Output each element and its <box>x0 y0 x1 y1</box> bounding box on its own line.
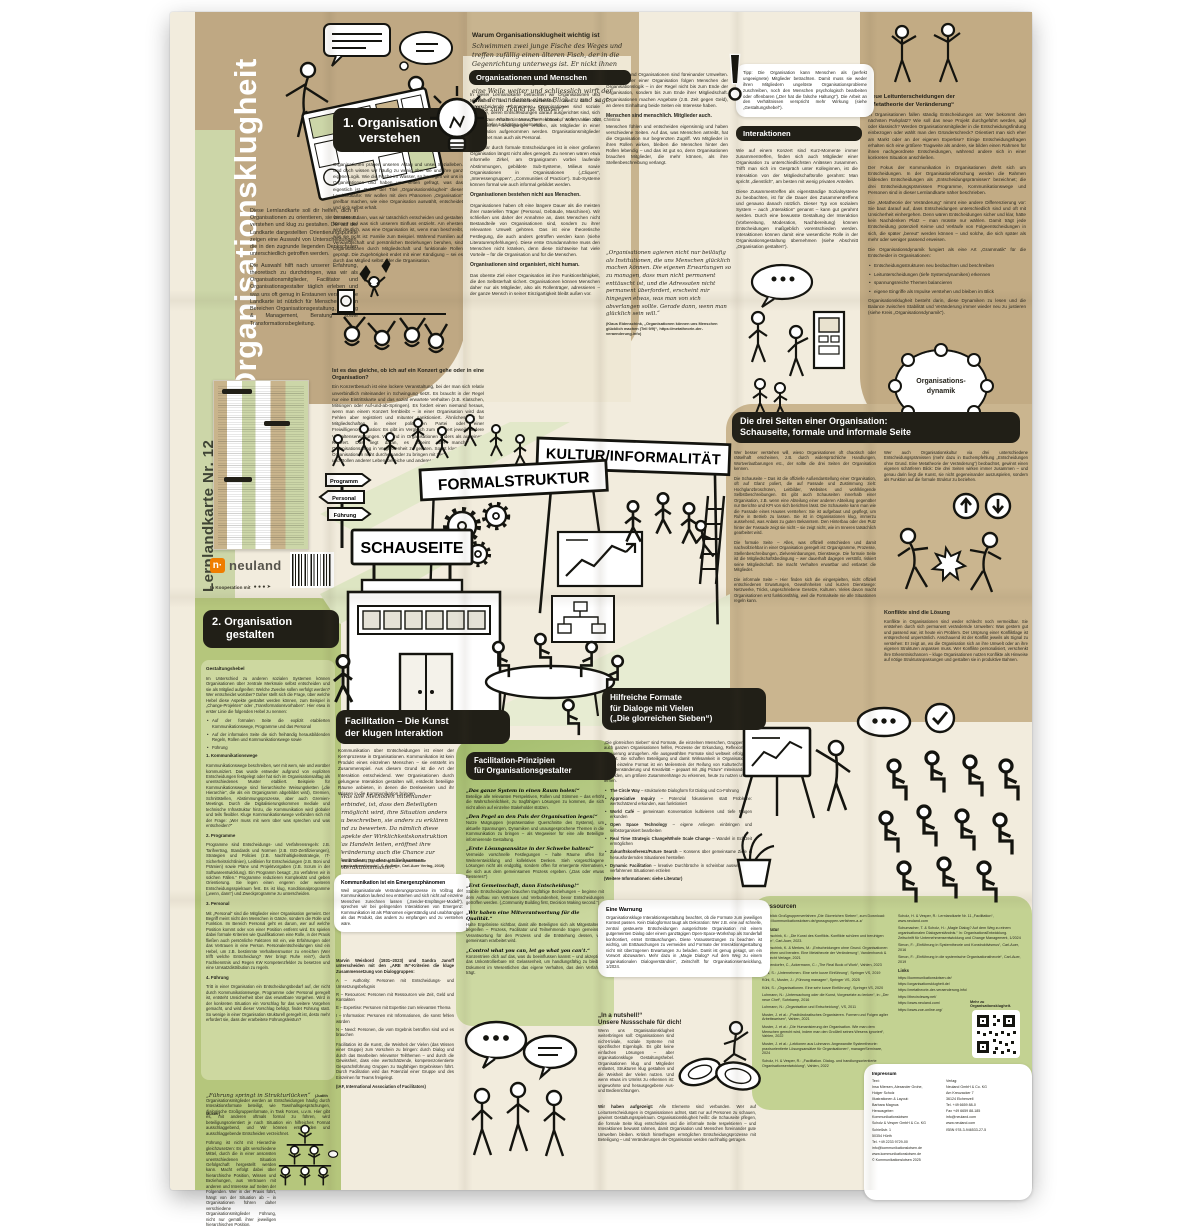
formate-block: „Die glorreichen Sieben“ sind Formate, d… <box>604 740 752 885</box>
paragraph: In dieser Lernlandkarte betrachten wir O… <box>470 92 600 141</box>
signpost-personal: Personal <box>332 496 356 502</box>
list-item: Simon, F.: „Einführung in die systemisch… <box>898 955 1024 965</box>
tipp-box: Tipp: Die Organisation kann Menschen als… <box>736 64 874 117</box>
hebel-heading: Gestaltungshebel <box>206 666 245 671</box>
tipp-text: Tipp: Die Organisation kann Menschen als… <box>743 70 867 111</box>
list-item: Luhmann, N.: „Organisation und Entscheid… <box>762 1005 890 1010</box>
paragraph: Die Schauseite – Das ist die offizielle … <box>734 476 876 536</box>
list-item: N – Need: Personen, die vom Ergebnis bet… <box>336 1027 454 1038</box>
signpost-fuehrung: Führung <box>334 513 357 519</box>
facilitation-closing: Facilitation ist die Kunst, die Weisheit… <box>336 1042 454 1080</box>
formate-note: (Weitere Informationen: siehe Literatur) <box>604 876 752 881</box>
building-facade <box>348 592 500 726</box>
list-item: Holger Scholz <box>872 1091 938 1096</box>
list-item: info@neuland.com <box>946 1115 1012 1120</box>
kooperation-label: In Kooperation mit <box>210 585 251 590</box>
gestalten-sub1-body: Kommunikationswege beschreiben, wer mit … <box>206 763 330 828</box>
paragraph: Wie auf einem Konzert sind Kurz-Momente … <box>736 148 858 185</box>
drei-seiten-badge-line2: Schauseite, formale und informale Seite <box>740 427 1012 438</box>
list-item: Illustrationen & Layout: <box>872 1097 938 1102</box>
paragraph: Der Fokus der Kommunikation in Organisat… <box>868 165 1026 196</box>
aufgezeigt-heading: Wir haben aufgezeigt: <box>598 1104 653 1109</box>
audience <box>880 752 1018 903</box>
list-item: Muster, J. et al.: „Lektionen aus Luhman… <box>762 1042 890 1056</box>
list-item: Schumacher, T. & Scholz, H.: „Magie Dial… <box>898 926 1024 940</box>
list-item: © Kommunikationslotsen 2025 <box>872 1158 938 1163</box>
formate-badge-line3: („Die glorreichen Sieben“) <box>610 714 758 725</box>
drei-seiten-col2-top: Wer auch Organisationskultur via drei un… <box>884 450 1028 487</box>
subheading: Organisationen bestehen nicht aus Mensch… <box>470 192 581 198</box>
list-item: Muster, J. et al.: „Postbürokratisches O… <box>762 1013 890 1023</box>
prinzipien-badge-line1: Facilitation-Prinzipien <box>474 756 555 765</box>
list-item: Grubendorfer, C., Ackermann, C.: „The Re… <box>762 963 890 968</box>
list-item: Auf der informalen Seite die sich freihä… <box>212 732 330 743</box>
gestalten-sub3-body: Mit „Personal“ sind die Mitglieder einer… <box>206 911 330 971</box>
konflikte-block: Konflikte sind die Lösung Konflikte in O… <box>884 610 1028 667</box>
list-item: Muster, J. et al.: „Die Humanisierung de… <box>762 1025 890 1039</box>
formate-lead: „Die glorreichen Sieben“ sind Formate, d… <box>604 740 752 784</box>
list-item: Tel. +49 2233 9729-00 <box>872 1140 938 1145</box>
diagram-label-line2: dynamik <box>927 388 956 395</box>
gestalten-sub3-heading: 3. Personal <box>206 901 229 906</box>
paragraph: Diese Zusammentreffen als eigenständige … <box>736 189 858 250</box>
paragraph: Organisationen haben oft eine längere Da… <box>470 203 600 258</box>
mini-poster-thumbnail <box>213 380 309 550</box>
line-chart-board <box>558 532 642 586</box>
formate-badge: Hilfreiche Formate für Dialoge mit Viele… <box>602 688 766 730</box>
format-name: Appreciative Inquiry <box>610 796 655 801</box>
prinzipien-list: „Das ganze System in einen Raum holen!“ … <box>466 788 604 975</box>
prinzip-quote: „Wir haben eine Mitverantwortung für die… <box>466 910 604 922</box>
list-item: Tel. +49 6659 88-0 <box>946 1103 1012 1108</box>
gestalten-badge-line2: gestalten <box>212 629 330 642</box>
facilitation-badge-line1: Facilitation – Die Kunst <box>345 715 449 726</box>
quote-source: (Klaus Eidenschink, „Organisationen könn… <box>606 321 732 336</box>
format-name: World Café <box>610 809 634 814</box>
signpost-programm: Programm <box>330 479 358 485</box>
gestalten-badge: 2. Organisation gestalten <box>203 610 339 648</box>
metatheorie-text: In Organisationen fallen ständig Entsche… <box>868 112 1026 321</box>
list-item: Kommunikationslotsen <box>872 1115 938 1120</box>
qr-code <box>972 1010 1020 1058</box>
gestalten-sub4-heading: 4. Führung <box>206 975 229 980</box>
thought-cloud-icon <box>400 32 452 70</box>
subheading: Menschen sind menschlich. Mitglieder auc… <box>606 113 712 119</box>
ressourcen-left: Überblick Großgruppenverfahren „Die Glor… <box>762 914 890 1071</box>
neuland-logo-icon: n· <box>210 558 225 573</box>
formate-badge-line2: für Dialoge mit Vielen <box>610 704 758 715</box>
aufgezeigt-body: Alle Elemente sind verbunden. Wer auf Le… <box>598 1104 756 1142</box>
list-item: www.neuland.com <box>946 1121 1012 1126</box>
neuland-logo: n· neuland <box>210 558 282 573</box>
gestalten-content: Gestaltungshebel Im Unterschied zu ander… <box>206 666 330 1026</box>
list-item: E – Expertise: Personen mit Expertise zu… <box>336 1005 454 1010</box>
list-item: Simon, F.: „Einführung in Systemtheorie … <box>898 943 1024 953</box>
flipchart-presentation-illustration <box>732 700 1032 912</box>
list-item: Verlag: <box>946 1079 1012 1084</box>
list-item: spannungsreiche Themen balancieren <box>874 280 1026 286</box>
kooperation-line: In Kooperation mit ● ● ● ➤ <box>210 584 271 590</box>
paragraph: Menschen fühlen und entscheiden eigensin… <box>606 124 728 167</box>
poster-sheet: Lernlandkarte Nr. 12 Organisationsklughe… <box>170 12 1032 1190</box>
section1-paragraph: Organisationen prägen unseren Alltag und… <box>333 162 463 211</box>
warnung-heading: Eine Warnung <box>606 907 762 913</box>
list-item: Auf der formalen Seite die explizit etab… <box>212 718 330 729</box>
impressum-right: Verlag:Neuland GmbH & Co. KGAm Kreuzacke… <box>946 1079 1012 1164</box>
format-name: Open Space Technology <box>610 822 667 827</box>
emergenz-box: Kommunikation ist ein Emergenzphänomen W… <box>334 874 470 932</box>
neuland-logo-text: neuland <box>229 558 282 573</box>
list-item: R – Resources: Personen mit Ressourcen w… <box>336 992 454 1003</box>
metatheorie-heading-line1: Neue Leitunterscheidungen der <box>868 94 955 100</box>
format-desc: – strukturierte Dialogform für Dialog un… <box>640 788 739 793</box>
paragraph: Erwartbar durch formale Entscheidungen i… <box>470 145 600 188</box>
paragraph: Wer auch Organisationskultur via drei un… <box>884 450 1028 483</box>
gestalten-sub4-body: Tritt in einer Organisation ein Entschei… <box>206 984 330 1022</box>
subheading: Organisationen sind organisiert, nicht h… <box>470 262 579 268</box>
impressum-heading: Impressum <box>872 1071 1024 1076</box>
partner-logos-icon: ● ● ● ➤ <box>254 584 271 590</box>
facilitation-badge-line2: der klugen Interaktion <box>345 727 501 739</box>
facilitation-text: Kommunikation über Entscheidungen ist ei… <box>338 748 454 801</box>
plant-icon <box>738 832 774 886</box>
prinzip-body: Beteilige alle relevanten Perspektiven, … <box>466 794 604 810</box>
impressum-box: Impressum Text:Insa Miersen, Alexander G… <box>864 1064 1032 1200</box>
list-item: A – Authority: Personen mit Entscheidung… <box>336 978 454 989</box>
list-item: Luhmann, N.: „Unterwachung oder die Kuns… <box>762 993 890 1003</box>
central-map-illustration: Programm Personal Führung KULTUR/INFORMA… <box>320 404 730 726</box>
literatur-list-right: Scholz, H. & Vesper, R.: Lernlandkarte N… <box>898 914 1024 965</box>
paragraph: Die formale Seite – Alles, was offiziell… <box>734 540 876 573</box>
list-item: Text: <box>872 1079 938 1084</box>
paragraph: In Organisationen fallen ständig Entsche… <box>868 112 1026 161</box>
drei-seiten-badge: Die drei Seiten einer Organisation: Scha… <box>732 412 1020 443</box>
konflikte-heading: Konflikte sind die Lösung <box>884 610 1028 617</box>
gestalten-sub2-body: Programme sind Entscheidungs- und Verfah… <box>206 842 330 897</box>
section1-badge-line1: 1. Organisation <box>343 115 438 130</box>
metatheorie-bullets: Entscheidungsstrukturen neu beobachten u… <box>868 263 1026 295</box>
list-item: https://organisationsklugheit.de/ <box>898 982 1024 987</box>
paragraph: Führung ist nicht mit Hierarchie gleichz… <box>206 1140 276 1227</box>
facilitation-closing-source: (IAF, International Association of Facil… <box>336 1084 454 1089</box>
paragraph: Die informale Seite – Hier finden sich d… <box>734 577 876 604</box>
list-item: 50354 Hürth <box>872 1134 938 1139</box>
paragraph: Organisationsklugheit besteht darin, die… <box>868 298 1026 316</box>
emergenz-heading: Kommunikation ist ein Emergenzphänomen <box>341 880 463 886</box>
list-item: I – Information: Personen mit Informatio… <box>336 1013 454 1024</box>
formate-badge-line1: Hilfreiche Formate <box>610 693 682 702</box>
ressourcen-right: Scholz, H. & Vesper, R.: Lernlandkarte N… <box>898 914 1024 1014</box>
prinzip-body: Vermeide vorschnelle Festlegungen – halt… <box>466 852 604 879</box>
paragraph: Die „Metatheorie der Veränderung“ nimmt … <box>868 200 1026 243</box>
facilitation-quote-source: (Fritz B. Simon, „Einführung in die syst… <box>338 858 454 868</box>
dialog-group-illustration <box>458 1018 582 1182</box>
interaktionen-text: Wie auf einem Konzert sind Kurz-Momente … <box>736 148 858 254</box>
literatur-heading: Literatur <box>762 927 890 932</box>
list-item: Kühl, S.: „Unternehmen. Eine sehr kurze … <box>762 971 890 976</box>
arein-lead: Marvin Weisbord (1931–2023) und Sandra J… <box>336 958 454 974</box>
paragraph: Wer besser verstehen will, wieso Organis… <box>734 450 876 472</box>
prinzip-body: Konzentriere dich auf das, was du beeinf… <box>466 954 604 976</box>
gestalten-sub1-heading: 1. Kommunikationswege <box>206 753 257 758</box>
konzert-heading: Ist es das gleiche, ob ich auf ein Konze… <box>332 368 484 382</box>
exclamation-icon <box>718 52 752 104</box>
list-item: Kühl, S., Muster, J.: „Führung managen“,… <box>762 978 890 983</box>
aufgezeigt-block: Wir haben aufgezeigt: Alle Elemente sind… <box>598 1104 756 1146</box>
flipchart-easel <box>740 728 814 818</box>
nutshell-body: Wenn uns Organisationsklugheit weiterbri… <box>598 1028 674 1093</box>
hebel-body: Im Unterschied zu anderen sozialen Syste… <box>206 676 330 714</box>
diagram-label-line1: Organisations- <box>916 378 966 385</box>
paragraph: Das oberste Ziel einer Organisation ist … <box>470 273 600 298</box>
metatheorie-heading: Neue Leitunterscheidungen der „Metatheor… <box>868 94 1026 109</box>
list-item: Scholz & Vesper GmbH & Co. KG <box>872 1121 938 1126</box>
list-item: Scholz, H. & Vesper, R.: Lernlandkarte N… <box>898 914 1024 924</box>
org-menschen-colA: In dieser Lernlandkarte betrachten wir O… <box>470 92 600 301</box>
section1-text: Organisationen prägen unseren Alltag und… <box>333 162 463 268</box>
concert-crowd-illustration <box>330 256 450 364</box>
list-item: info@kommunikationslotsen.de <box>872 1146 938 1151</box>
prinzip-quote: „Control what you can, let go what you c… <box>466 948 604 954</box>
format-name: Real Time Strategic Change/Whole Scale C… <box>610 836 711 841</box>
list-item: https://thecircleway.net/ <box>898 995 1024 1000</box>
gestalten-badge-line1: 2. Organisation <box>212 616 292 628</box>
list-item: Schießstr. 1 <box>872 1128 938 1133</box>
org-chart-board <box>552 596 614 642</box>
prinzip-body: Halte Ergebnisse sichtbar, damit alle Be… <box>466 922 604 944</box>
arein-block: Marvin Weisbord (1931–2023) und Sandra J… <box>336 958 454 1093</box>
interaction-illustration <box>730 260 860 420</box>
metatheorie-heading-line2: „Metatheorie der Veränderung“ <box>868 102 954 108</box>
list-item: eigene Eingriffe als Impulse verstehen u… <box>874 289 1026 295</box>
quote-text: „Organisationen agieren nicht nur beiläu… <box>606 250 732 319</box>
literatur-list-left: Eidenschink, K.: „Die Kunst des Konflikt… <box>762 934 890 1068</box>
warnung-body: Organisationskluge Interaktionsgestaltun… <box>606 915 762 970</box>
drei-seiten-badge-line1: Die drei Seiten einer Organisation: <box>740 416 888 426</box>
qr-label: Mehr zu Organisationsklugheit. <box>970 1000 1026 1008</box>
list-item: Kühl, S.: „Organisationen. Eine sehr kur… <box>762 986 890 991</box>
list-item: Neuland GmbH & Co. KG <box>946 1085 1012 1090</box>
warnung-box: Eine Warnung Organisationskluge Interakt… <box>598 900 770 977</box>
interaktionen-badge: Interaktionen <box>736 126 862 141</box>
list-item: Am Kreuzacker 7 <box>946 1091 1012 1096</box>
links-heading: Links <box>898 968 1024 973</box>
list-item: Leitunterscheidungen (tiefe Systemdynami… <box>874 272 1026 278</box>
emergenz-body: Weil organisationale Veränderungsprozess… <box>341 888 463 926</box>
format-name: The Circle Way <box>610 788 640 793</box>
prinzipien-badge-line2: für Organisationsgestalter <box>474 766 608 776</box>
hebel-bullets: Auf der formalen Seite die explizit etab… <box>206 718 330 750</box>
schauseite-sign-label: SCHAUSEITE <box>360 540 463 557</box>
list-item: ISBN 978-3-946533-27-5 <box>946 1128 1012 1133</box>
org-menschen-colB: Menschen und Organisationen sind füreina… <box>606 72 728 171</box>
list-item: www.kommunikationslotsen.de <box>872 1152 938 1157</box>
lightbulb-icon <box>428 84 486 168</box>
list-item: Fax +49 6659 88-185 <box>946 1109 1012 1114</box>
list-item: Entscheidungsstrukturen neu beobachten u… <box>874 263 1026 269</box>
list-item: Eidenschink, K. & Merkes, M.: „Entscheid… <box>762 946 890 960</box>
prinzipien-badge: Facilitation-Prinzipien für Organisation… <box>466 752 616 780</box>
gestalten-sub2-heading: 2. Programme <box>206 833 235 838</box>
walnut-illustration <box>676 1006 768 1102</box>
download-note: Überblick Großgruppenverfahren „Die Glor… <box>762 914 890 924</box>
paragraph: Die Organisationsdynamik fungiert als ei… <box>868 247 1026 259</box>
prinzip-body: Stabile Entscheidungen brauchen tragfähi… <box>466 889 604 905</box>
facilitation-badge: Facilitation – Die Kunst der klugen Inte… <box>336 710 510 744</box>
format-name: Zukunftskonferenz/Future Search <box>610 849 677 854</box>
list-item: Führung <box>212 745 330 750</box>
why-heading: Warum Organisationsklugheit wichtig ist <box>472 32 624 39</box>
org-menschen-badge: Organisationen und Menschen <box>469 70 631 85</box>
list-item: Herausgeber: <box>872 1109 938 1114</box>
konflikte-body: Konflikte in Organisationen sind weder s… <box>884 619 1028 663</box>
two-people-talking-illustration <box>876 18 976 94</box>
list-item: https://kommunikationslotsen.de/ <box>898 976 1024 981</box>
updown-conflict-illustration <box>870 490 1030 608</box>
ladder <box>693 496 724 584</box>
drei-seiten-col1: Wer besser verstehen will, wieso Organis… <box>734 450 876 608</box>
list-item: Insa Miersen, Alexander Grohe, <box>872 1085 938 1090</box>
list-item: Eidenschink, K.: „Die Kunst des Konflikt… <box>762 934 890 944</box>
speech-bubble-icon <box>324 24 390 66</box>
schauseite-sign: SCHAUSEITE <box>352 530 472 592</box>
list-item: https://metatheorie-der-veraenderung.inf… <box>898 988 1024 993</box>
list-item: 36124 Eichenzell <box>946 1097 1012 1102</box>
presenter-figure <box>816 741 850 811</box>
arein-list: A – Authority: Personen mit Entscheidung… <box>336 978 454 1037</box>
list-item: Barbara Magnus <box>872 1103 938 1108</box>
human-pyramid-illustration <box>272 1124 338 1188</box>
impressum-left: Text:Insa Miersen, Alexander Grohe,Holge… <box>872 1079 938 1164</box>
eidenschink-quote: „Organisationen agieren nicht nur beiläu… <box>606 250 732 336</box>
paragraph: Kommunikation über Entscheidungen ist ei… <box>338 748 454 797</box>
prinzip-body: Nutze Mutgruppen (repräsentative Quersch… <box>466 820 604 842</box>
format-name: Dynamic Facilitation <box>610 863 652 868</box>
